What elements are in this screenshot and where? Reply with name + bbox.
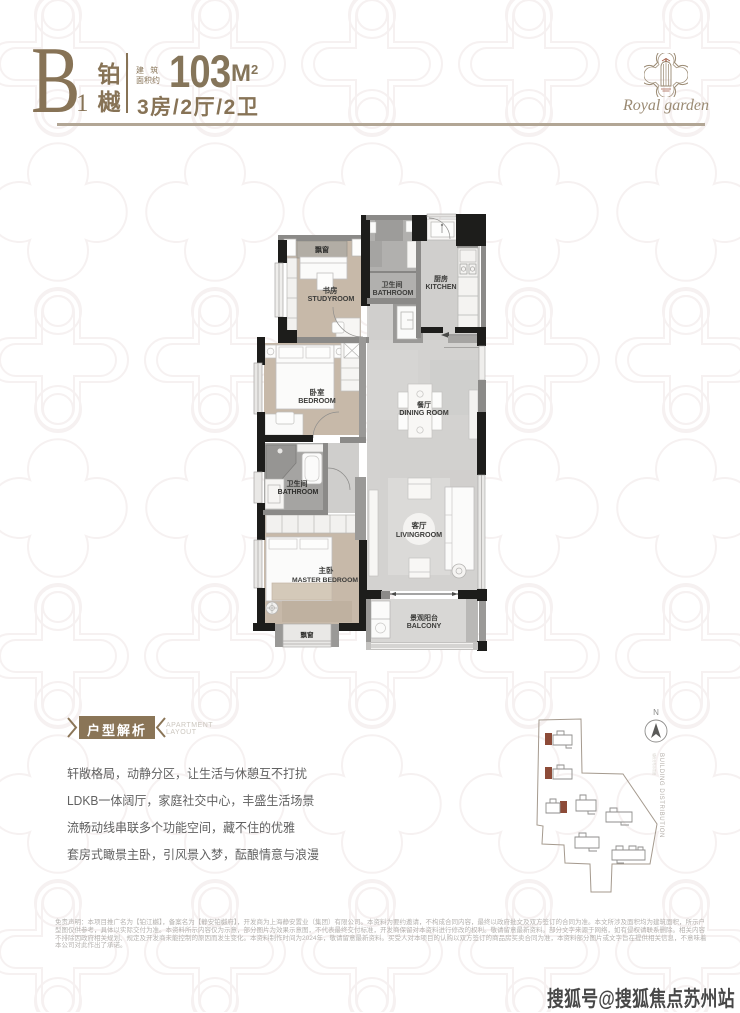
svg-text:楼栋分布示意图: 楼栋分布示意图 <box>652 753 657 775</box>
svg-text:BUILDING DISTRIBUTION: BUILDING DISTRIBUTION <box>658 753 664 838</box>
svg-text:N: N <box>653 708 659 717</box>
